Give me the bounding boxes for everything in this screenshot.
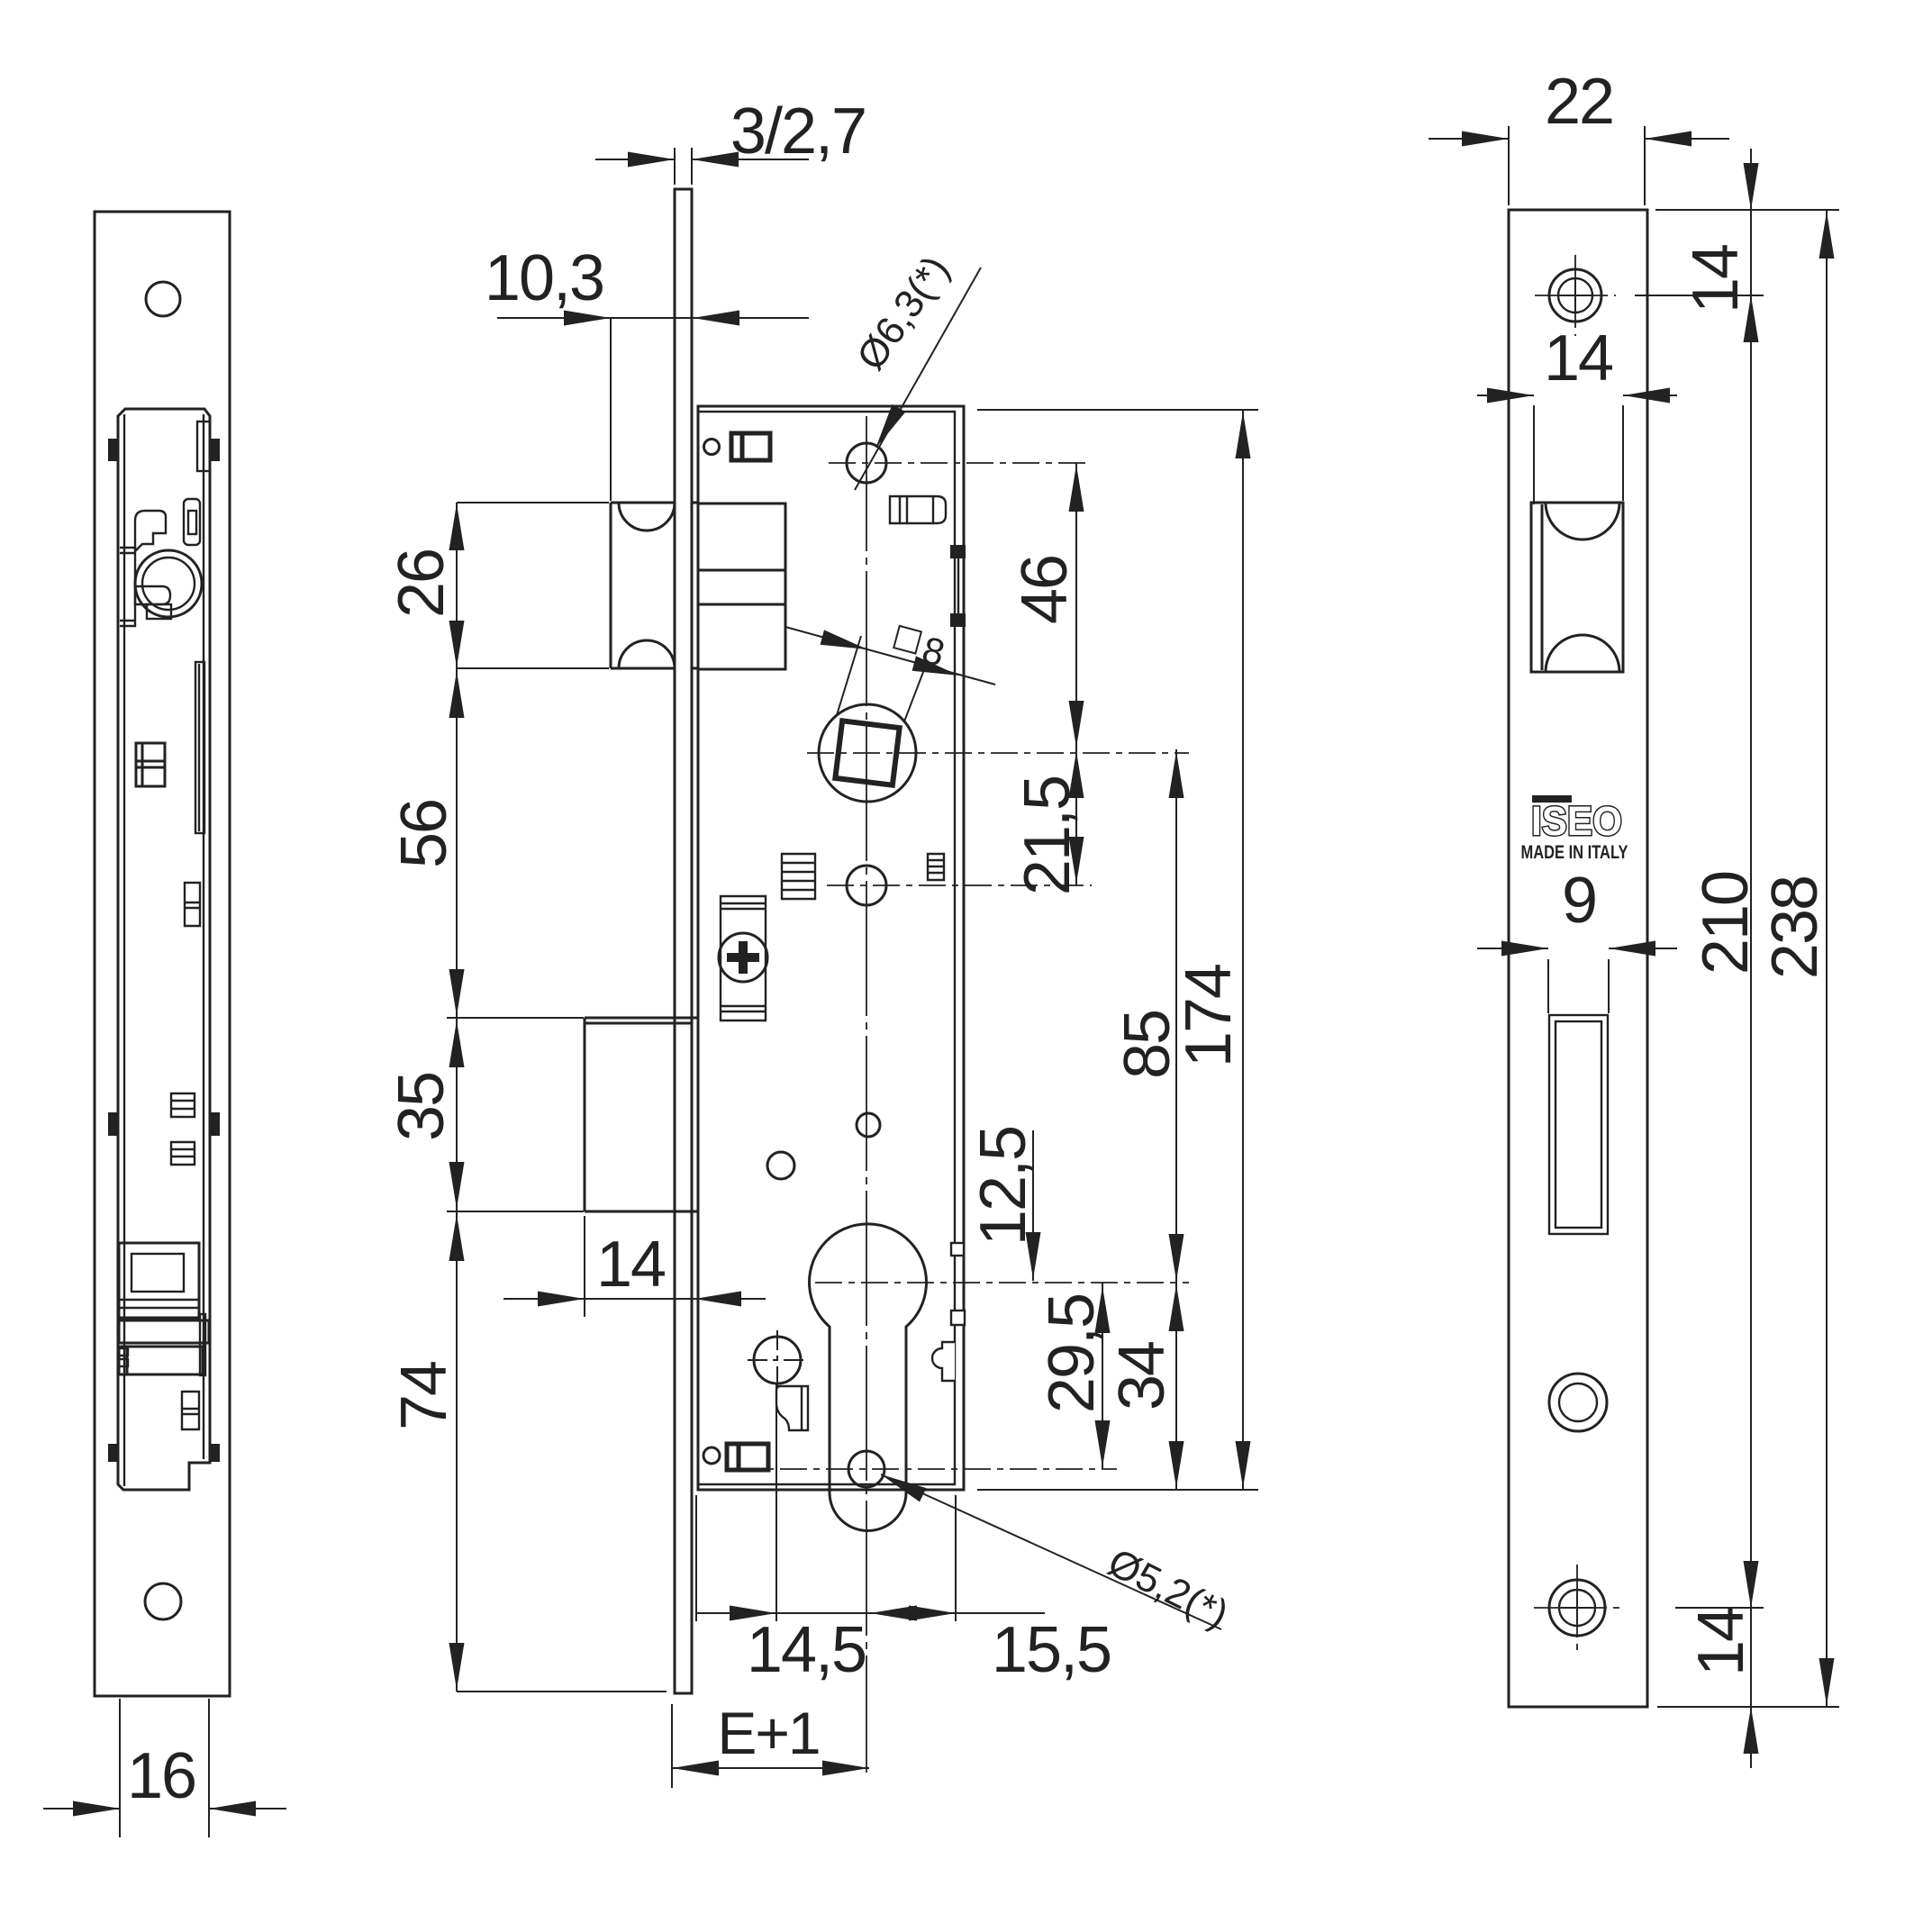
svg-text:14: 14 (1544, 322, 1612, 395)
svg-text:35: 35 (385, 1073, 458, 1141)
svg-text:26: 26 (385, 549, 458, 618)
svg-text:ISEO: ISEO (1531, 798, 1622, 844)
svg-text:16: 16 (127, 1740, 195, 1812)
svg-text:210: 210 (1690, 872, 1762, 975)
svg-text:MADE IN ITALY: MADE IN ITALY (1521, 842, 1628, 863)
svg-text:56: 56 (388, 800, 460, 868)
svg-text:238: 238 (1759, 876, 1831, 979)
svg-text:14: 14 (596, 1229, 665, 1301)
svg-text:E+1: E+1 (717, 1700, 819, 1766)
svg-text:14: 14 (1680, 245, 1752, 313)
svg-text:14,5: 14,5 (747, 1614, 866, 1686)
svg-text:10,3: 10,3 (485, 242, 603, 314)
svg-text:22: 22 (1545, 66, 1613, 138)
svg-text:174: 174 (1173, 965, 1245, 1067)
svg-text:15,5: 15,5 (992, 1614, 1111, 1686)
svg-text:9: 9 (1562, 865, 1596, 937)
svg-text:29,5: 29,5 (1036, 1294, 1108, 1413)
svg-text:12,5: 12,5 (967, 1127, 1039, 1246)
svg-text:14: 14 (1685, 1608, 1757, 1676)
svg-text:46: 46 (1009, 556, 1081, 624)
svg-text:3/2,7: 3/2,7 (730, 95, 866, 168)
svg-text:74: 74 (388, 1362, 460, 1430)
svg-text:21,5: 21,5 (1011, 776, 1084, 895)
svg-text:34: 34 (1106, 1342, 1178, 1410)
